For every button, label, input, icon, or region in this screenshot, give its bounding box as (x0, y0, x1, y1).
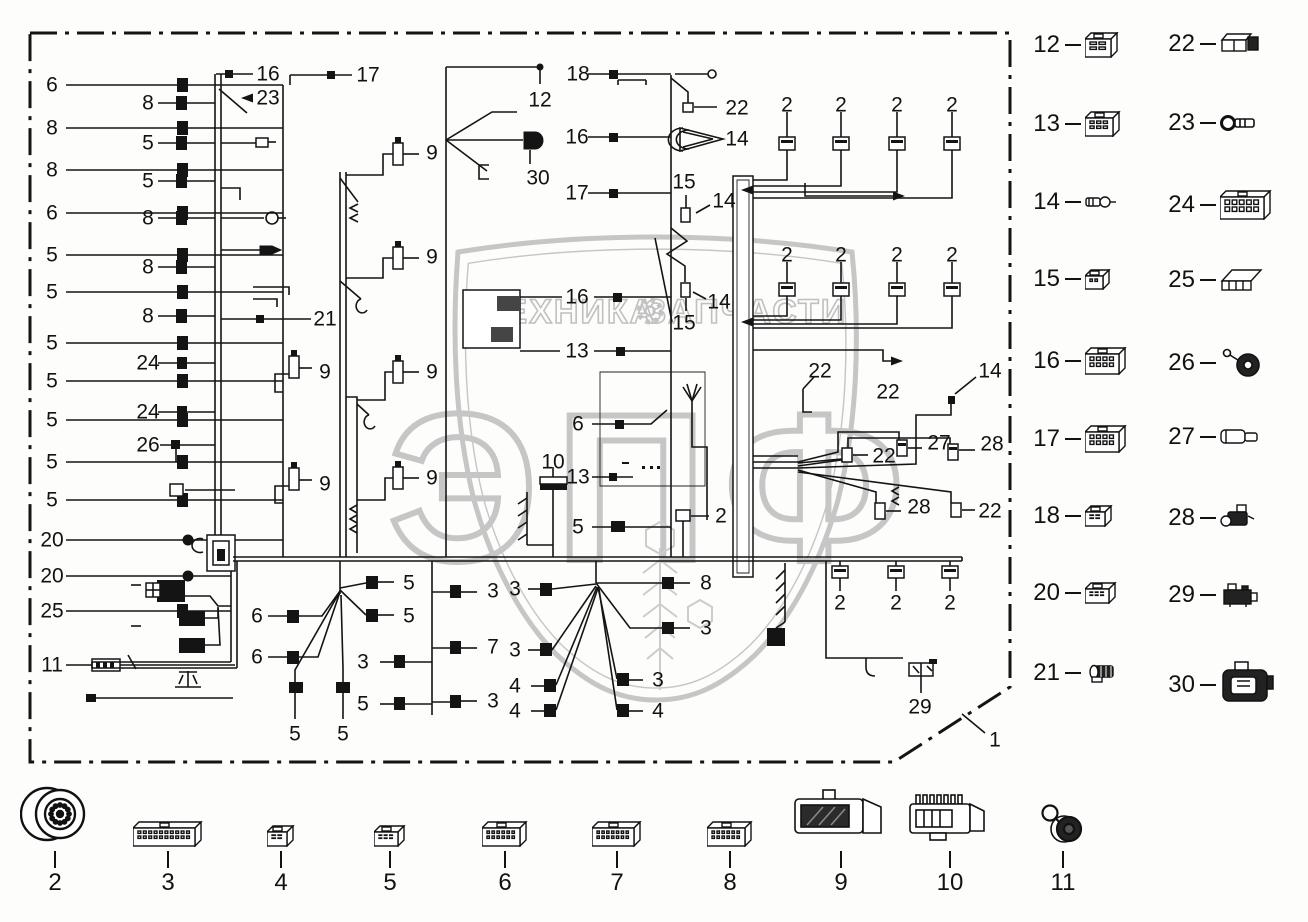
callout-4: 4 (509, 676, 521, 697)
legend-part-10: 10 (890, 775, 1010, 895)
part-number: 6 (498, 871, 511, 895)
callout-15: 15 (672, 172, 695, 193)
connector-8pin-icon (1085, 425, 1127, 453)
callout-8: 8 (142, 306, 154, 327)
legend-part-9: 9 (781, 775, 901, 895)
callout-5: 5 (403, 606, 415, 627)
callout-3: 3 (487, 691, 499, 712)
part-number: 8 (723, 871, 736, 895)
callout-5: 5 (572, 517, 584, 538)
legend-part-22: 22 (1157, 32, 1262, 56)
leader-line (840, 851, 842, 868)
part-number: 22 (1157, 32, 1195, 56)
leader-line (280, 851, 282, 868)
legend-part-30: 30 (1157, 660, 1276, 710)
leader-line (1065, 278, 1081, 280)
callout-1: 1 (989, 730, 1001, 751)
connector-4pin-small-icon (1085, 505, 1113, 527)
leader-line (1065, 438, 1081, 440)
callout-3: 3 (700, 618, 712, 639)
part-number: 16 (1022, 349, 1060, 373)
callout-5: 5 (337, 724, 349, 745)
legend-part-27: 27 (1157, 425, 1260, 449)
callout-9: 9 (319, 362, 331, 383)
callout-2: 2 (891, 95, 903, 116)
legend-part-18: 18 (1022, 504, 1113, 528)
callout-10: 10 (541, 452, 564, 473)
part-number: 20 (1022, 581, 1060, 605)
legend-part-8: 8 (670, 775, 790, 895)
callout-18: 18 (566, 64, 589, 85)
leader-line (54, 851, 56, 868)
part-number: 12 (1022, 33, 1060, 57)
callout-3: 3 (487, 581, 499, 602)
connector-6pin-icon (1085, 111, 1121, 137)
legend-part-6: 6 (445, 775, 565, 895)
connector-cover-icon (1220, 267, 1264, 293)
leader-line (1200, 684, 1216, 686)
part-number: 4 (274, 871, 287, 895)
legend-part-21: 21 (1022, 660, 1123, 686)
callout-6: 6 (46, 75, 58, 96)
legend-part-5: 5 (330, 775, 450, 895)
callout-14: 14 (725, 129, 748, 150)
connector-4pin-icon (1085, 32, 1119, 58)
callout-22: 22 (876, 382, 899, 403)
legend-part-14: 14 (1022, 190, 1119, 214)
callout-4: 4 (509, 701, 521, 722)
legend-part-11: 11 (1003, 775, 1123, 895)
callout-2: 2 (781, 95, 793, 116)
callout-26: 26 (136, 435, 159, 456)
leader-line (1062, 851, 1064, 868)
leader-line (1065, 44, 1081, 46)
sealed-connector-icon (1085, 660, 1123, 686)
connector-10pin-icon (1220, 190, 1272, 220)
leader-line (1200, 436, 1216, 438)
leader-line (616, 851, 618, 868)
callout-8: 8 (142, 93, 154, 114)
callout-22: 22 (808, 361, 831, 382)
legend-part-25: 25 (1157, 267, 1264, 293)
callout-24: 24 (136, 353, 159, 374)
leader-line (729, 851, 731, 868)
sealed-plug-icon (1220, 504, 1258, 532)
callout-2: 2 (944, 593, 956, 614)
legend-part-12: 12 (1022, 32, 1119, 58)
callout-5: 5 (46, 410, 58, 431)
part-number: 9 (834, 871, 847, 895)
callout-17: 17 (356, 65, 379, 86)
callout-15: 15 (672, 313, 695, 334)
callout-28: 28 (907, 497, 930, 518)
part-number: 5 (383, 871, 396, 895)
part-number: 10 (937, 871, 964, 895)
legend-part-2: 2 (0, 775, 115, 895)
legend-part-3: 3 (108, 775, 228, 895)
grommet-icon (1220, 347, 1262, 379)
callout-29: 29 (908, 697, 931, 718)
callout-8: 8 (142, 208, 154, 229)
callout-14: 14 (712, 191, 735, 212)
legend-part-15: 15 (1022, 267, 1111, 291)
part-number: 30 (1157, 673, 1195, 697)
part-number: 23 (1157, 111, 1195, 135)
part-number: 7 (610, 871, 623, 895)
part-number: 29 (1157, 583, 1195, 607)
large-housing-icon (1220, 660, 1276, 710)
callout-16: 16 (256, 64, 279, 85)
leader-line (1200, 43, 1216, 45)
callout-5: 5 (46, 333, 58, 354)
leader-line (1065, 592, 1081, 594)
callout-20: 20 (40, 530, 63, 551)
leader-line (1065, 360, 1081, 362)
callout-5: 5 (289, 724, 301, 745)
callout-22: 22 (725, 98, 748, 119)
legend-part-28: 28 (1157, 504, 1258, 532)
round-connector-icon (20, 781, 90, 847)
callout-5: 5 (142, 133, 154, 154)
callout-6: 6 (572, 414, 584, 435)
callout-4: 4 (652, 701, 664, 722)
callout-8: 8 (142, 257, 154, 278)
part-number: 28 (1157, 506, 1195, 530)
callout-7: 7 (487, 637, 499, 658)
callout-20: 20 (40, 566, 63, 587)
part-number: 27 (1157, 425, 1195, 449)
callout-17: 17 (565, 183, 588, 204)
part-number: 15 (1022, 267, 1060, 291)
round-cap-icon (1037, 801, 1089, 847)
legend-part-7: 7 (557, 775, 677, 895)
part-number: 13 (1022, 112, 1060, 136)
leader-line (1065, 515, 1081, 517)
legend-part-17: 17 (1022, 425, 1127, 453)
callout-3: 3 (357, 652, 369, 673)
callout-22: 22 (872, 446, 895, 467)
callout-13: 13 (565, 341, 588, 362)
connector-8pin-icon (1085, 347, 1127, 375)
callout-9: 9 (426, 362, 438, 383)
callout-23: 23 (256, 88, 279, 109)
callout-12: 12 (528, 90, 551, 111)
part-number: 26 (1157, 351, 1195, 375)
callout-9: 9 (426, 247, 438, 268)
part-number: 2 (48, 871, 61, 895)
part-number: 18 (1022, 504, 1060, 528)
callout-2: 2 (891, 245, 903, 266)
connector-4pin-small-icon (267, 825, 295, 847)
legend-part-23: 23 (1157, 111, 1260, 135)
callout-22: 22 (978, 501, 1001, 522)
callout-8: 8 (46, 118, 58, 139)
part-number: 24 (1157, 193, 1195, 217)
connector-12pin-icon (482, 821, 528, 847)
leader-line (1065, 201, 1081, 203)
callout-5: 5 (46, 452, 58, 473)
connector-2piece-icon (1220, 33, 1262, 55)
connector-14pin-icon (592, 821, 642, 847)
callout-2: 2 (781, 245, 793, 266)
leader-line (1065, 123, 1081, 125)
legend-part-20: 20 (1022, 581, 1117, 605)
callout-13: 13 (566, 467, 589, 488)
leader-line (1200, 122, 1216, 124)
callout-9: 9 (426, 143, 438, 164)
leader-line (1065, 672, 1081, 674)
callout-28: 28 (980, 434, 1003, 455)
callout-2: 2 (834, 593, 846, 614)
legend-part-4: 4 (221, 775, 341, 895)
leader-line (1200, 594, 1216, 596)
callout-3: 3 (652, 670, 664, 691)
housing-with-cover-icon (793, 787, 889, 847)
callout-5: 5 (46, 371, 58, 392)
callout-8: 8 (46, 160, 58, 181)
ring-terminal-icon (1220, 114, 1260, 132)
legend-part-24: 24 (1157, 190, 1272, 220)
part-number: 11 (1051, 871, 1076, 895)
callout-6: 6 (251, 647, 263, 668)
connector-6pin-small-icon (374, 825, 406, 847)
callout-24: 24 (136, 402, 159, 423)
callout-2: 2 (890, 593, 902, 614)
leader-line (1200, 517, 1216, 519)
wiring-harness-parts-diagram: ТЕХНИКА ЗАПЧАСТИ ЭПФ 6886555555520202511… (0, 0, 1308, 922)
callout-25: 25 (40, 601, 63, 622)
leader-line (949, 851, 951, 868)
legend-part-29: 29 (1157, 581, 1260, 609)
connector-2pin-icon (1085, 269, 1111, 290)
callout-14: 14 (978, 361, 1001, 382)
callout-11: 11 (41, 655, 63, 676)
leader-line (1200, 279, 1216, 281)
connector-6pin-small-icon (1085, 582, 1117, 604)
leader-line (1200, 362, 1216, 364)
callout-6: 6 (251, 606, 263, 627)
legend-part-26: 26 (1157, 347, 1262, 379)
leader-line (1200, 204, 1216, 206)
part-number: 3 (161, 871, 174, 895)
legend-part-16: 16 (1022, 347, 1127, 375)
callout-3: 3 (509, 579, 521, 600)
relay-bracket-icon (1220, 581, 1260, 609)
callout-6: 6 (46, 203, 58, 224)
connector-12pin-icon (707, 821, 753, 847)
callout-2: 2 (946, 95, 958, 116)
callout-2: 2 (715, 506, 727, 527)
callout-9: 9 (319, 474, 331, 495)
part-number: 14 (1022, 190, 1060, 214)
callout-16: 16 (565, 127, 588, 148)
leader-line (504, 851, 506, 868)
bullet-terminal-icon (1085, 192, 1119, 212)
part-number: 21 (1022, 661, 1060, 685)
terminal-sleeve-icon (1220, 425, 1260, 449)
part-number: 25 (1157, 268, 1195, 292)
connector-20pin-icon (133, 821, 203, 847)
callout-5: 5 (357, 694, 369, 715)
callout-16: 16 (565, 287, 588, 308)
housing-with-pins-icon (908, 791, 992, 847)
callout-5: 5 (46, 245, 58, 266)
callout-14: 14 (707, 292, 730, 313)
legend-part-13: 13 (1022, 111, 1121, 137)
callout-27: 27 (927, 433, 950, 454)
callout-5: 5 (46, 490, 58, 511)
callout-5: 5 (403, 573, 415, 594)
leader-line (167, 851, 169, 868)
callout-21: 21 (313, 309, 336, 330)
callout-9: 9 (426, 468, 438, 489)
part-number: 17 (1022, 427, 1060, 451)
leader-line (389, 851, 391, 868)
callout-2: 2 (835, 245, 847, 266)
callout-30: 30 (526, 168, 549, 189)
callout-2: 2 (946, 245, 958, 266)
callout-5: 5 (142, 171, 154, 192)
callout-5: 5 (46, 282, 58, 303)
callout-2: 2 (835, 95, 847, 116)
callout-8: 8 (700, 573, 712, 594)
callout-3: 3 (509, 640, 521, 661)
